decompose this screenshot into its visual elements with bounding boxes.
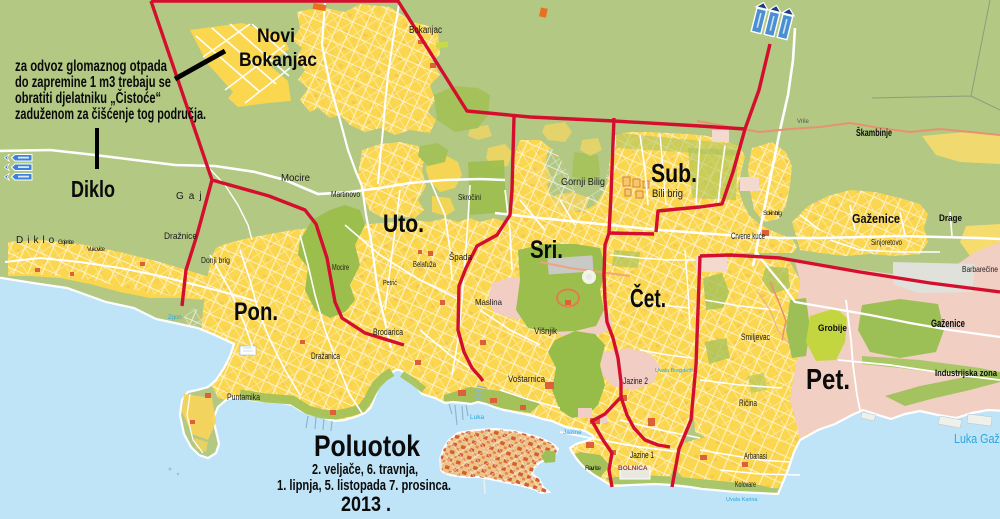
svg-text:Sri.: Sri. xyxy=(530,236,563,264)
svg-text:Jazine 1: Jazine 1 xyxy=(630,450,654,460)
svg-text:Puntamika: Puntamika xyxy=(227,392,260,402)
svg-text:Arbanasi: Arbanasi xyxy=(744,451,767,461)
svg-text:BOLNICA: BOLNICA xyxy=(618,465,648,472)
svg-text:Bokanjac: Bokanjac xyxy=(409,25,442,36)
svg-text:Uto.: Uto. xyxy=(383,210,424,238)
svg-text:Mocire: Mocire xyxy=(332,263,349,272)
svg-text:Diklo: Diklo xyxy=(71,176,115,202)
svg-text:Skročini: Skročini xyxy=(458,192,481,202)
svg-text:Drage: Drage xyxy=(939,213,962,224)
svg-text:Maslina: Maslina xyxy=(475,297,502,307)
svg-text:Bokanjac: Bokanjac xyxy=(239,50,317,71)
svg-text:Zgon: Zgon xyxy=(168,315,182,321)
svg-text:Sinjoretovo: Sinjoretovo xyxy=(871,238,902,247)
svg-text:Gaj: Gaj xyxy=(176,191,207,202)
svg-text:Petrić: Petrić xyxy=(383,278,397,287)
svg-text:Bili brig: Bili brig xyxy=(652,188,683,200)
svg-text:Dražnice: Dražnice xyxy=(164,231,197,242)
svg-text:Uvala Bregdetti: Uvala Bregdetti xyxy=(655,368,693,374)
svg-text:Višnjik: Višnjik xyxy=(534,326,557,336)
svg-text:Pet.: Pet. xyxy=(806,364,850,396)
svg-text:2. veljače, 6. travnja,: 2. veljače, 6. travnja, xyxy=(312,462,418,478)
svg-text:Dražanica: Dražanica xyxy=(311,351,340,361)
svg-text:Mocire: Mocire xyxy=(281,173,310,184)
svg-text:Ričina: Ričina xyxy=(739,398,757,408)
svg-text:Gaženice: Gaženice xyxy=(852,212,900,226)
svg-text:Sub.: Sub. xyxy=(651,158,697,188)
svg-text:Novi: Novi xyxy=(257,26,295,47)
svg-text:Grobije: Grobije xyxy=(818,323,847,334)
svg-text:Luka Gaženi: Luka Gaženi xyxy=(954,432,1000,446)
svg-text:Industrijska zona: Industrijska zona xyxy=(935,368,998,379)
svg-text:Luka: Luka xyxy=(470,414,484,421)
svg-text:1. lipnja, 5. listopada 7. pr: 1. lipnja, 5. listopada 7. prosinca. xyxy=(277,478,451,494)
svg-text:Poluotok: Poluotok xyxy=(314,430,420,463)
svg-text:Pon.: Pon. xyxy=(234,298,278,326)
svg-text:Gojenice: Gojenice xyxy=(58,240,75,246)
svg-text:Martinovo: Martinovo xyxy=(331,189,360,199)
svg-text:Barbarečine: Barbarečine xyxy=(962,264,998,274)
svg-text:Crvene kuće: Crvene kuće xyxy=(731,231,765,241)
svg-text:Jazine 2: Jazine 2 xyxy=(623,376,648,386)
svg-text:Voštarnica: Voštarnica xyxy=(508,374,546,385)
svg-text:Sokin brig: Sokin brig xyxy=(763,210,782,217)
svg-text:Škambinje: Škambinje xyxy=(856,126,892,139)
svg-text:Vukovice: Vukovice xyxy=(87,247,106,253)
svg-text:2013 .: 2013 . xyxy=(341,493,391,516)
svg-text:Uvala Karina: Uvala Karina xyxy=(726,497,758,503)
svg-text:Gornji Bilig: Gornji Bilig xyxy=(561,176,605,188)
svg-text:obratiti djelatniku „Čistoće“: obratiti djelatniku „Čistoće“ xyxy=(15,89,161,107)
svg-text:Čet.: Čet. xyxy=(630,283,666,313)
svg-text:Smiljevac: Smiljevac xyxy=(741,332,770,342)
svg-text:do zapremine 1 m3 trebaju se: do zapremine 1 m3 trebaju se xyxy=(15,74,171,91)
svg-text:Diklo: Diklo xyxy=(16,235,58,246)
svg-text:Gaženice: Gaženice xyxy=(931,318,965,330)
svg-text:Špada: Špada xyxy=(449,252,472,262)
svg-text:Jazine: Jazine xyxy=(563,429,582,436)
svg-text:Vrile: Vrile xyxy=(797,119,809,125)
svg-text:Donji brig: Donji brig xyxy=(201,255,230,265)
svg-text:zaduženom za čišćenje tog podr: zaduženom za čišćenje tog područja. xyxy=(15,106,206,123)
svg-text:Brodarica: Brodarica xyxy=(373,327,403,337)
svg-text:za odvoz glomaznog otpada: za odvoz glomaznog otpada xyxy=(15,58,167,75)
svg-text:Ravnice: Ravnice xyxy=(585,465,601,472)
svg-text:Kolovare: Kolovare xyxy=(735,480,756,489)
svg-text:Belafuža: Belafuža xyxy=(413,260,436,269)
